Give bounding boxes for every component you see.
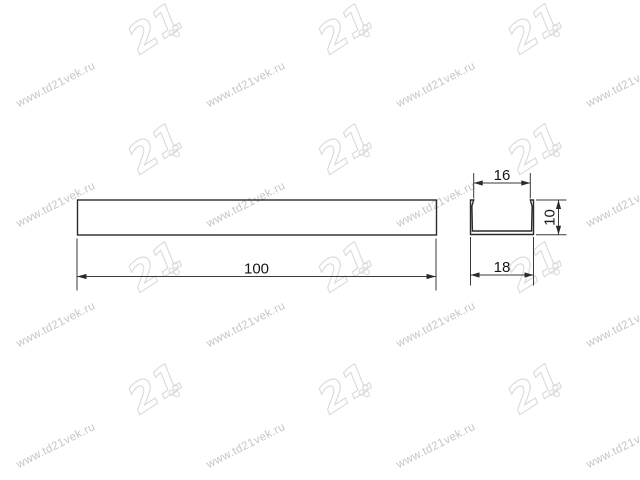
dim-16-arrow-left [474, 180, 483, 185]
dim-label-16: 16 [494, 167, 511, 184]
dim-label-18: 18 [494, 259, 511, 276]
dim-100-arrow-right [427, 274, 437, 279]
dim-10-arrow-top [556, 200, 561, 209]
dim-label-100: 100 [244, 261, 269, 278]
dim-100-arrow-left [77, 274, 87, 279]
dim-18-arrow-right [525, 272, 534, 277]
dim-10-arrow-bottom [556, 226, 561, 235]
dim-18-arrow-left [471, 272, 480, 277]
drawing-canvas: www.td21vek.ruwww.td21vek.ruwww.td21vek.… [0, 0, 640, 480]
front-view-outline [78, 200, 437, 235]
dim-16-arrow-right [521, 180, 530, 185]
profile-drawing: 100 16 10 18 [0, 0, 640, 480]
section-view-outline [471, 200, 534, 235]
dim-label-10: 10 [542, 209, 559, 226]
